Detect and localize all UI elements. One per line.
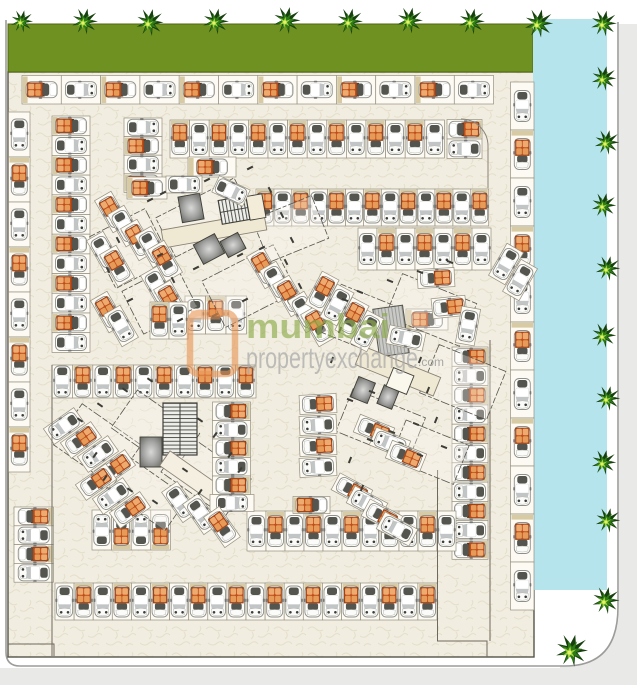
svg-text:propertyexchange: propertyexchange <box>246 342 418 375</box>
svg-text:.com: .com <box>418 355 444 369</box>
svg-text:mumbai: mumbai <box>246 308 390 346</box>
